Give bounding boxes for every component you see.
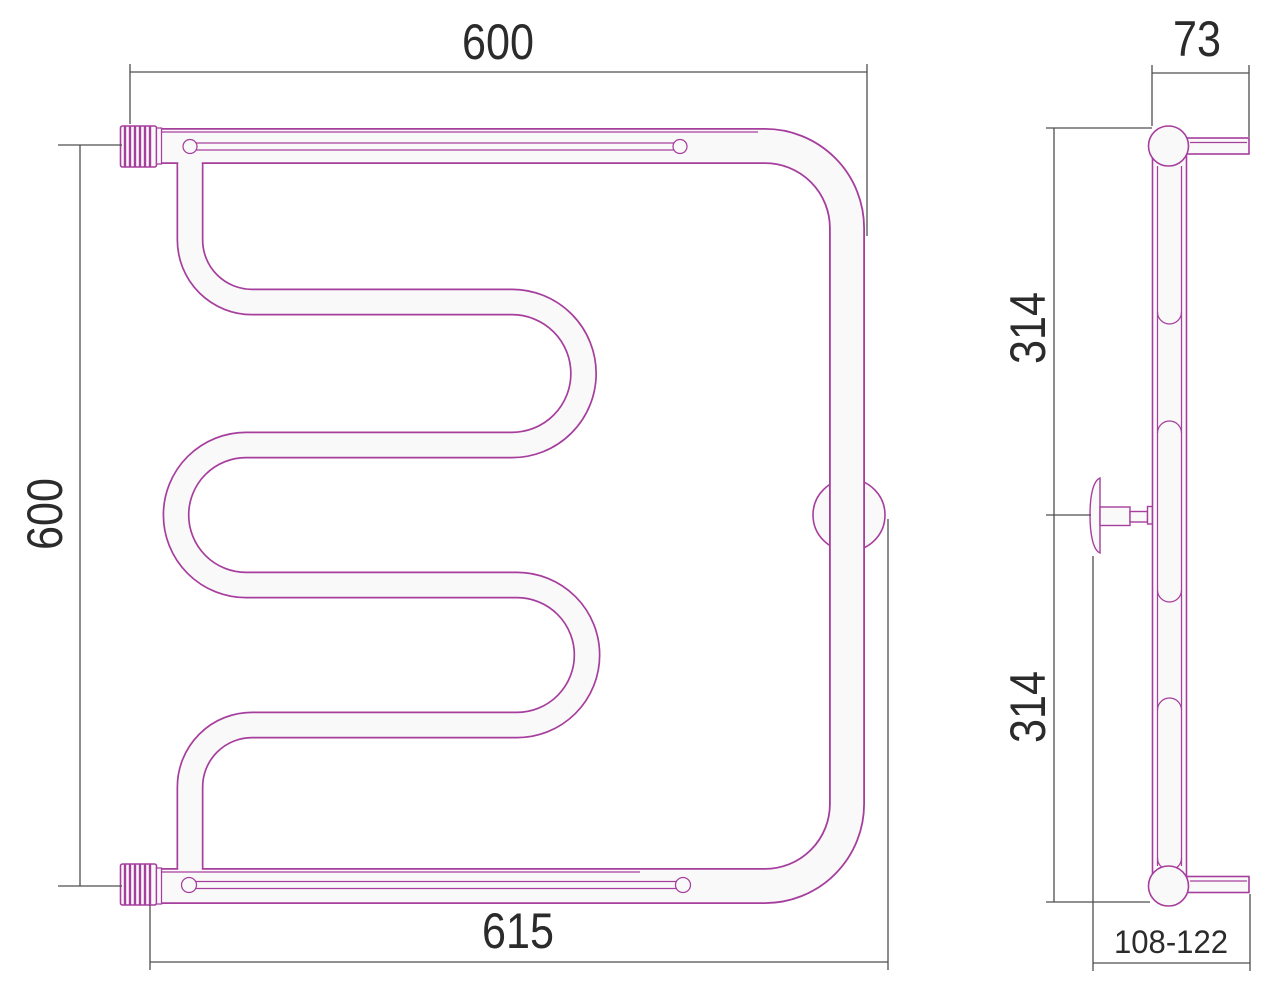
bottom-junction-opening <box>178 866 201 872</box>
dim-label-top-width: 600 <box>462 14 534 70</box>
dim-side-depth: 73 <box>1152 11 1249 137</box>
top-slot-right-cap <box>673 140 687 154</box>
bottom-slot-left-cap <box>182 878 197 893</box>
top-fitting-flange <box>157 128 162 164</box>
dim-front-top-width: 600 <box>130 14 867 236</box>
frame-pipe-body <box>158 146 847 886</box>
dim-label-depth: 73 <box>1173 11 1221 67</box>
side-top-stub <box>1186 138 1249 154</box>
bracket-neck <box>1130 512 1148 523</box>
top-slot-left-cap <box>183 140 197 154</box>
dim-label-wall-offset: 108-122 <box>1114 924 1228 960</box>
bottom-fitting-flange <box>157 868 162 904</box>
drawing-canvas: 600 600 615 73 314 <box>0 0 1280 995</box>
towel-rail-drawing: 600 600 615 73 314 <box>0 0 1280 995</box>
side-view <box>1090 126 1249 906</box>
dim-label-bottom-width: 615 <box>482 903 554 959</box>
coil-pipe-outline <box>176 150 587 882</box>
side-bottom-stub <box>1186 877 1249 893</box>
dim-label-lower-span: 314 <box>1000 671 1056 743</box>
top-threaded-fitting <box>121 126 162 167</box>
side-bottom-collar <box>1149 866 1189 906</box>
bottom-slot-right-cap <box>676 878 691 893</box>
dim-front-left-height: 600 <box>17 145 122 886</box>
side-wall-bracket <box>1090 478 1153 553</box>
bracket-wall-plate <box>1090 478 1100 553</box>
dim-label-left-height: 600 <box>17 478 73 550</box>
frame-pipe-outline <box>158 146 847 886</box>
front-view <box>121 126 886 905</box>
dim-label-upper-span: 314 <box>1000 292 1056 364</box>
coil-pipe-body <box>176 150 587 882</box>
side-top-collar <box>1149 126 1189 166</box>
top-junction-opening <box>178 161 201 167</box>
bottom-threaded-fitting <box>121 864 162 905</box>
bracket-arm <box>1100 507 1130 526</box>
